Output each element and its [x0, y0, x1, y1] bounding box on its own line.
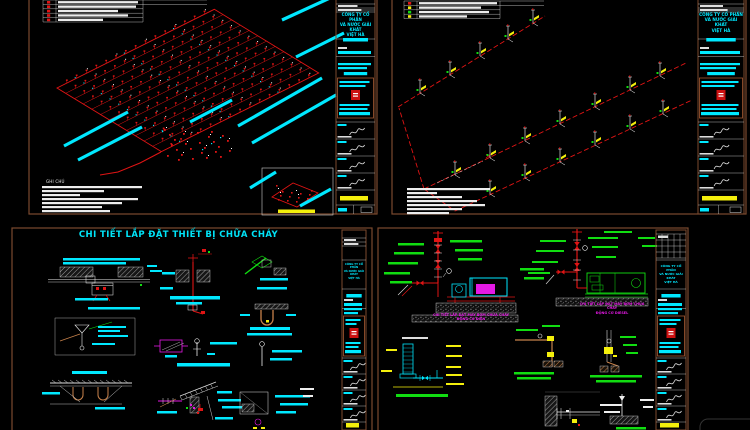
company-line: VIỆT HÀ	[343, 277, 365, 280]
company-line: VIỆT HÀ	[657, 281, 685, 285]
sheet3-title: CHI TIẾT LẮP ĐẶT THIẾT BỊ CHỮA CHÁY	[12, 230, 345, 240]
titleblock-4	[656, 230, 686, 430]
sheet4-details	[381, 229, 657, 430]
sheet1-notes	[42, 186, 142, 212]
cad-drawing-viewport: CHI TIẾT LẮP ĐẶT THIẾT BỊ CHỮA CHÁY GHI …	[0, 0, 750, 430]
company-line: VÀ NƯỚC GIẢI KHÁT	[336, 22, 375, 32]
sheet1-legend	[43, 0, 207, 22]
hydrant-runs	[398, 16, 692, 211]
caption-electric-pump: CHI TIẾT LẮP ĐẶT MÁY BƠM CHỮA CHÁY ĐỘNG …	[424, 313, 518, 322]
company-line: CÔNG TY CỔ PHẦN	[343, 263, 365, 270]
notes-label: GHI CHÚ	[46, 179, 65, 184]
pump-cluster	[162, 127, 232, 161]
hydrant-stations	[417, 9, 670, 198]
inset-detail	[250, 168, 333, 215]
sheet3-details	[42, 249, 314, 429]
caption-line: CHI TIẾT LẮP ĐẶT MÁY BƠM CHỮA CHÁY	[577, 302, 647, 311]
titleblock-company-2: CÔNG TY CỔ PHẦN VÀ NƯỚC GIẢI KHÁT VIỆT H…	[698, 12, 744, 33]
watermark-shape	[700, 419, 750, 430]
titleblock-company-3: CÔNG TY CỔ PHẦN VÀ NƯỚC GIẢI KHÁT VIỆT H…	[343, 263, 365, 280]
drawing-canvas	[0, 0, 750, 430]
company-line: VÀ NƯỚC GIẢI KHÁT	[698, 17, 744, 27]
titleblock-company-4: CÔNG TY CỔ PHẦN VÀ NƯỚC GIẢI KHÁT VIỆT H…	[657, 265, 685, 285]
caption-diesel-pump: CHI TIẾT LẮP ĐẶT MÁY BƠM CHỮA CHÁY ĐỘNG …	[577, 302, 647, 315]
titleblock-company-1: CÔNG TY CỔ PHẦN VÀ NƯỚC GIẢI KHÁT VIỆT H…	[336, 12, 375, 37]
company-line: VIỆT HÀ	[698, 28, 744, 33]
company-line: VÀ NƯỚC GIẢI KHÁT	[343, 270, 365, 277]
company-line: VIỆT HÀ	[336, 32, 375, 37]
sheet2-legend	[404, 1, 544, 19]
company-line: CÔNG TY CỔ PHẦN	[336, 12, 375, 22]
sheet2-notes	[407, 188, 490, 214]
caption-line: ĐỘNG CƠ ĐIỆN	[424, 317, 518, 321]
caption-line: ĐỘNG CƠ DIESEL	[577, 311, 647, 315]
sheet-frames	[12, 0, 746, 430]
titleblock-3	[342, 230, 366, 430]
